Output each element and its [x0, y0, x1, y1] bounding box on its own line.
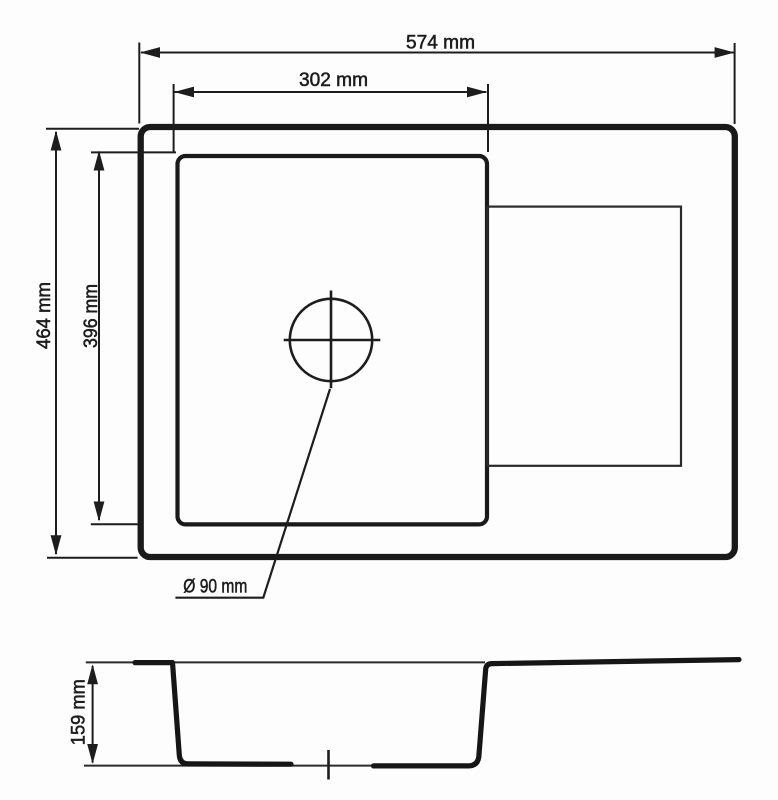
svg-text:Ø 90 mm: Ø 90 mm: [183, 576, 247, 598]
svg-text:574 mm: 574 mm: [406, 31, 475, 53]
svg-text:464 mm: 464 mm: [33, 282, 55, 349]
svg-text:159 mm: 159 mm: [67, 679, 89, 745]
svg-text:396 mm: 396 mm: [80, 284, 102, 348]
svg-text:302 mm: 302 mm: [299, 69, 368, 91]
